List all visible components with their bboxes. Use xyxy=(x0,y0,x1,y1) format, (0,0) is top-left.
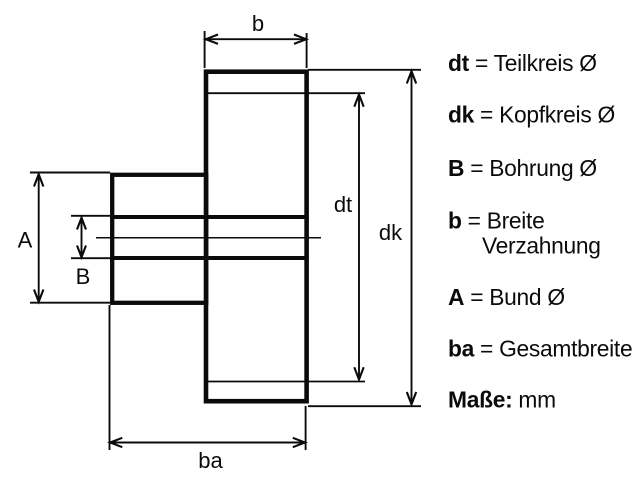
svg-text:b: b xyxy=(252,11,264,36)
svg-text:A: A xyxy=(18,228,33,253)
svg-text:Maße: mm: Maße: mm xyxy=(448,387,556,413)
svg-text:Verzahnung: Verzahnung xyxy=(482,233,601,259)
svg-text:ba = Gesamtbreite: ba = Gesamtbreite xyxy=(448,336,632,362)
svg-text:dt = Teilkreis Ø: dt = Teilkreis Ø xyxy=(448,50,597,76)
svg-text:dk: dk xyxy=(379,220,403,245)
svg-text:B: B xyxy=(76,264,91,289)
svg-text:A = Bund Ø: A = Bund Ø xyxy=(448,284,565,310)
svg-text:dk = Kopfkreis Ø: dk = Kopfkreis Ø xyxy=(448,102,615,128)
svg-text:B = Bohrung Ø: B = Bohrung Ø xyxy=(448,155,597,181)
svg-text:b = Breite: b = Breite xyxy=(448,208,544,234)
svg-text:ba: ba xyxy=(198,448,223,473)
svg-text:dt: dt xyxy=(334,192,352,217)
